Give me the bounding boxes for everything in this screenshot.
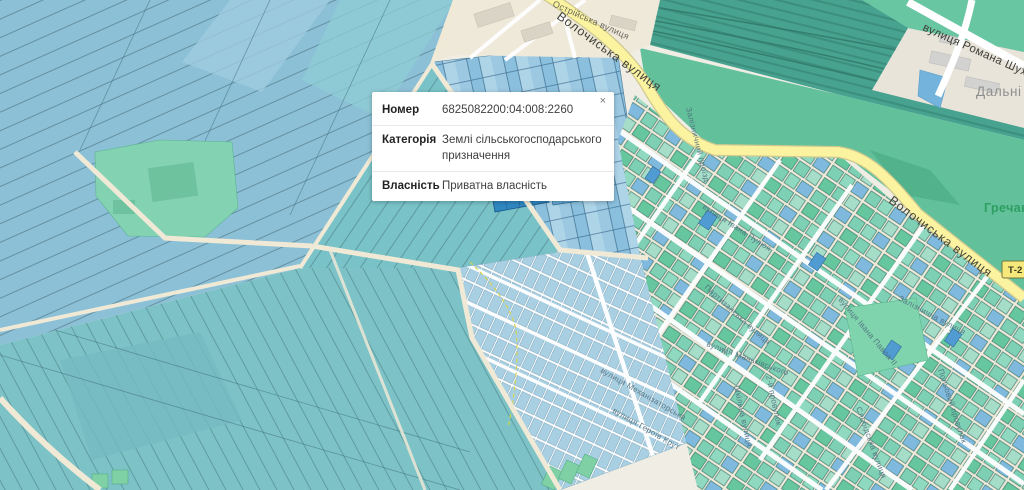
popup-rows: Номер 6825082200:04:008:2260 Категорія З… — [372, 92, 614, 201]
popup-close-button[interactable]: × — [596, 94, 610, 109]
building — [148, 162, 198, 202]
road-shield-label: Т-2 — [1008, 265, 1022, 276]
popup-row-category: Категорія Землі сільськогосподарського п… — [372, 126, 614, 172]
parcel-info-popup: × Номер 6825082200:04:008:2260 Категорія… — [372, 92, 614, 201]
popup-row-label: Власність — [382, 178, 442, 195]
map-canvas[interactable]: Т-2 Волочиська вулиця Волочиська вулиця … — [0, 0, 1024, 490]
popup-row-label: Категорія — [382, 132, 442, 149]
popup-row-label: Номер — [382, 102, 442, 119]
popup-row-value: Землі сільськогосподарського призначення — [442, 132, 602, 165]
popup-row-number: Номер 6825082200:04:008:2260 — [372, 96, 614, 126]
popup-row-value: 6825082200:04:008:2260 — [442, 102, 602, 119]
district-label-hrechany: Гречани — [984, 201, 1024, 215]
district-label-dalni: Дальні Гречани — [976, 84, 1024, 99]
popup-row-ownership: Власність Приватна власність — [372, 172, 614, 201]
popup-row-value: Приватна власність — [442, 178, 602, 195]
road-shield-t2: Т-2 — [1002, 261, 1024, 278]
map-svg: Т-2 Волочиська вулиця Волочиська вулиця … — [0, 0, 1024, 490]
